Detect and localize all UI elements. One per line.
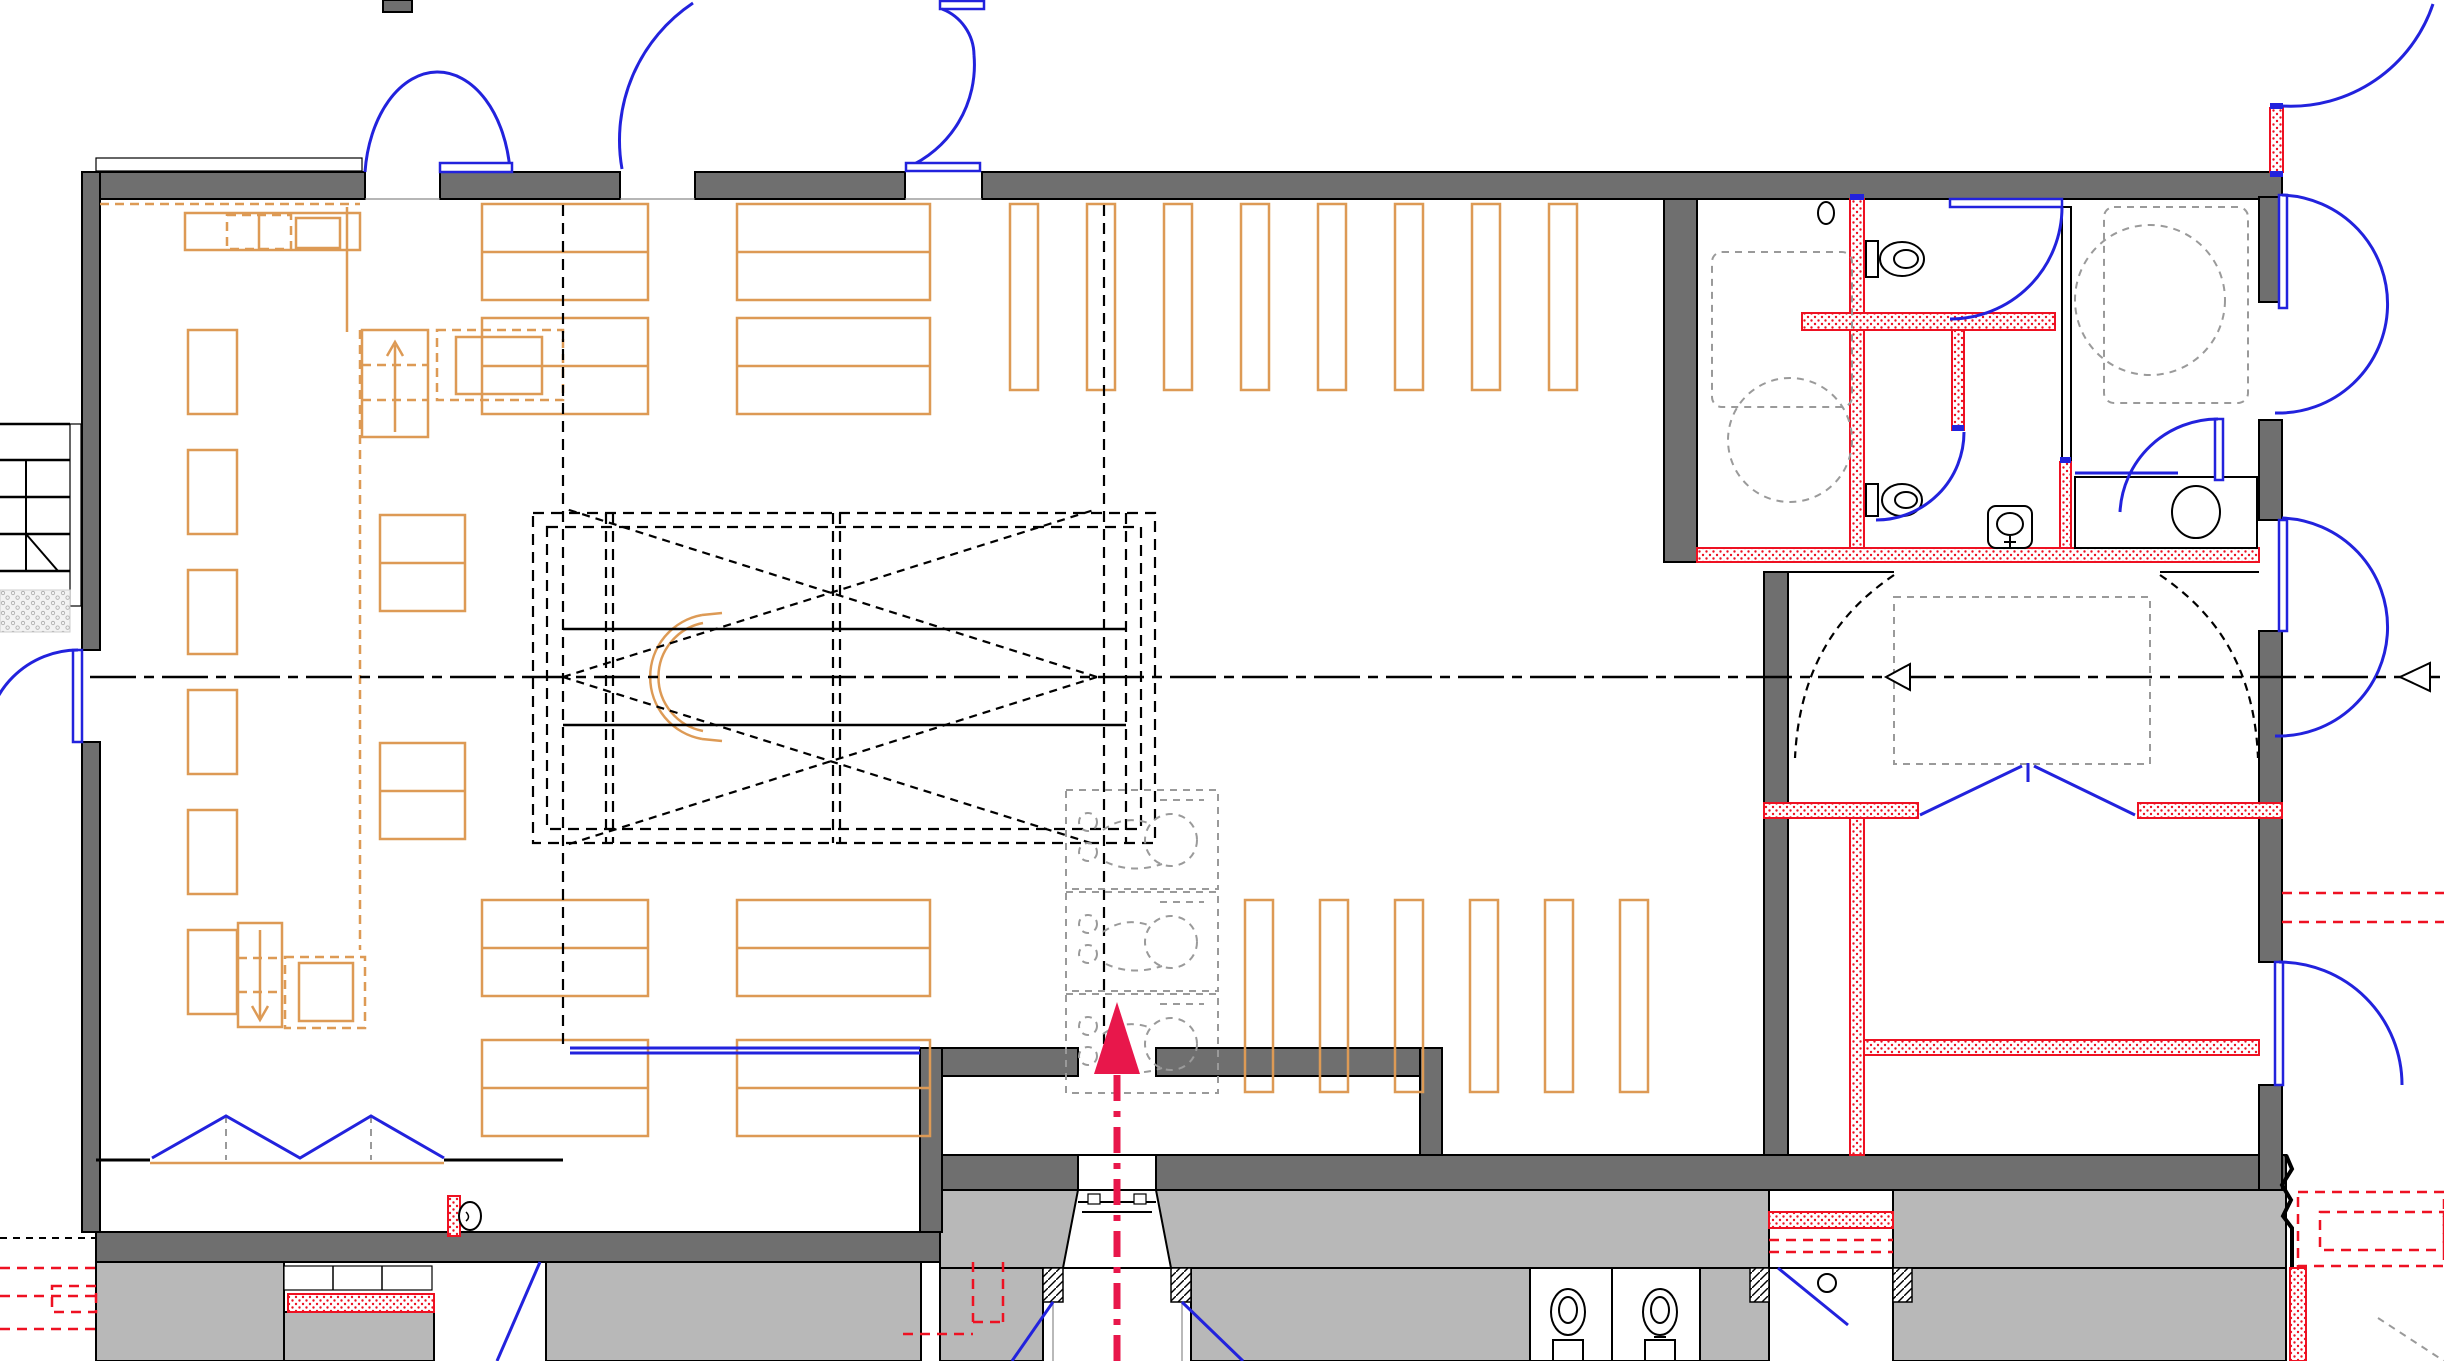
turning-circle: [2075, 225, 2225, 375]
door-frame-cap: [2270, 103, 2283, 109]
parapet-line: [96, 158, 362, 171]
new-wall: [1764, 803, 1918, 818]
door-leaf-open: [497, 1262, 540, 1361]
door-arc: [2279, 962, 2402, 1085]
vestibule-north-wall: [1156, 1048, 1420, 1076]
toilet: [1866, 241, 1924, 277]
door-leaf: [2279, 520, 2287, 631]
door-frame-cap: [1952, 425, 1964, 431]
door-arc: [0, 650, 78, 742]
lower-wall-mass: [940, 1268, 1043, 1361]
door-leaf-open: [1778, 1268, 1848, 1325]
pew-blocks-horizontal: [380, 204, 930, 1136]
table: [188, 690, 237, 774]
toilet-bowl-inner: [1894, 250, 1918, 268]
centerline-marker: [1886, 664, 1910, 690]
new-wall-pier: [2270, 108, 2283, 172]
new-wall: [1850, 818, 1864, 1155]
sight-line: [563, 509, 1097, 677]
west-wall-upper: [82, 172, 100, 650]
pew-slat: [1010, 204, 1038, 390]
drinking-fountain: [459, 1202, 481, 1230]
restroom-wall: [2060, 462, 2071, 548]
floor-plan-svg: [0, 0, 2444, 1361]
east-edge-pier: [2259, 631, 2282, 962]
door-leaf: [906, 163, 980, 171]
lower-wall-mass: [284, 1312, 434, 1361]
door-leaf: [940, 1, 984, 9]
restroom-south-wall: [1697, 548, 2259, 562]
table: [188, 810, 237, 894]
station-box: [1066, 994, 1218, 1093]
door-arc: [2283, 4, 2433, 106]
east-edge-pier: [2259, 1085, 2282, 1190]
new-wall: [2138, 803, 2282, 818]
door-arc-180: [2275, 518, 2388, 736]
door-frame-cap: [2060, 457, 2071, 463]
kitchen-shelving-upper: [362, 330, 563, 437]
kitchen-appliance: [296, 218, 340, 248]
flow-curve: [1795, 575, 1894, 758]
door-frame-cap: [2270, 171, 2283, 177]
entry-mat: [0, 590, 70, 632]
door-leaf: [1950, 199, 2062, 207]
table: [188, 330, 237, 414]
arc-end: [702, 613, 722, 615]
wall-fixture: [1818, 202, 1834, 224]
lower-wall-mass: [546, 1262, 921, 1361]
toilet-tank: [1645, 1340, 1675, 1361]
door-leaf: [440, 163, 512, 172]
door-arc: [1950, 207, 2062, 319]
south-wall-west: [96, 1232, 940, 1262]
arc-end: [702, 739, 722, 741]
door-jamb: [1750, 1268, 1769, 1302]
toilet-tank: [1866, 241, 1878, 277]
threshold-block: [1088, 1194, 1100, 1204]
sink: [2172, 486, 2220, 538]
pew-slat: [1549, 204, 1577, 390]
red-dashed-box: [2320, 1212, 2444, 1250]
station-seat: [1145, 814, 1197, 866]
door-leaf: [2279, 195, 2287, 308]
station-wheel: [1079, 843, 1097, 861]
room-west-wall: [1764, 818, 1788, 1155]
station-box: [1066, 892, 1218, 991]
station-wheel: [1079, 915, 1097, 933]
counter: [2075, 477, 2257, 548]
door-arc: [942, 9, 974, 55]
lavatory-bowl: [1997, 513, 2023, 535]
table: [188, 450, 237, 534]
stair-break: [26, 534, 58, 571]
door-jamb: [1893, 1268, 1912, 1302]
door-arc: [365, 72, 510, 172]
door-leaf: [2215, 419, 2223, 480]
pew-slat: [1470, 900, 1498, 1092]
floor-plan-canvas: [0, 0, 2444, 1361]
stair-railing: [70, 424, 81, 606]
door-leaf: [73, 650, 82, 742]
station-wheel: [1079, 1047, 1097, 1065]
pew-slat: [1620, 900, 1648, 1092]
stall-partition: [2062, 207, 2071, 462]
dashed-diagonal: [2378, 1318, 2444, 1361]
centerline-marker: [2400, 663, 2430, 691]
table: [188, 570, 237, 654]
clearance-rect: [2104, 207, 2248, 403]
toilet-tank: [1553, 1340, 1583, 1361]
floor-drain: [1818, 1274, 1836, 1292]
restroom-wall: [1952, 330, 1964, 430]
exterior-stairs: [0, 424, 70, 632]
lavatory: [1988, 506, 2032, 548]
counter-top: [299, 963, 353, 1021]
corridor-west-wall: [1764, 572, 1788, 803]
furniture: [100, 204, 1648, 1163]
north-wall-seg: [695, 172, 905, 199]
entry-arrow-head: [1094, 1002, 1140, 1074]
flow-curve: [2160, 575, 2258, 758]
pew-slat: [1087, 204, 1115, 390]
north-wall-seg: [982, 172, 2282, 199]
restroom-wall: [1802, 313, 2055, 330]
new-sill: [1769, 1212, 1893, 1228]
pew-slat: [1472, 204, 1500, 390]
pew-slat: [1164, 204, 1192, 390]
north-wall-seg: [440, 172, 620, 199]
toilet-bowl-inner: [1895, 492, 1917, 508]
station-detail: [1103, 800, 1204, 869]
sanctuary-east-wall: [1664, 199, 1697, 562]
sink-counter: [2075, 473, 2257, 548]
pew-slat: [1318, 204, 1346, 390]
kitchen-shelving-lower: [238, 923, 365, 1028]
station-wheel: [1079, 1017, 1097, 1035]
station-detail: [1103, 902, 1204, 971]
toilet-tank: [1866, 484, 1878, 516]
musician-station: [1066, 994, 1218, 1093]
toilet-bowl-inner: [1559, 1297, 1577, 1323]
turning-circle: [1728, 378, 1852, 502]
wall-stub: [383, 0, 412, 12]
lower-west-details: [284, 1266, 432, 1290]
door-arc: [619, 3, 693, 169]
lower-wall-mass: [1893, 1268, 2286, 1361]
sight-line: [563, 677, 1097, 845]
new-wall-band: [288, 1294, 434, 1312]
new-wall-band: [2290, 1268, 2306, 1361]
red-dashed-box: [52, 1286, 96, 1312]
pew-slat: [1395, 204, 1423, 390]
lower-wall-mass: [96, 1262, 284, 1361]
table: [188, 930, 237, 1014]
door-arc-180: [2275, 195, 2388, 413]
fountain-bowl: [459, 1202, 481, 1230]
door-jamb: [1171, 1268, 1191, 1302]
double-door-leaf: [2034, 766, 2135, 815]
door-arc: [906, 55, 974, 168]
station-seat: [1145, 916, 1197, 968]
stair-cells: [284, 1266, 432, 1290]
new-wall: [1864, 1040, 2259, 1055]
platform-dashed: [533, 205, 1155, 1048]
pew-slat: [1241, 204, 1269, 390]
centerline-group: [90, 663, 2444, 691]
lower-toilet-room: [1530, 1268, 1700, 1361]
folding-partition: [152, 1116, 444, 1158]
lower-wall-mass: [1191, 1268, 1530, 1361]
toilet-bowl-inner: [1651, 1297, 1669, 1323]
threshold-block: [1134, 1194, 1146, 1204]
door-jamb: [1043, 1268, 1063, 1302]
clearance-square: [1894, 597, 2150, 764]
existing-walls: [70, 0, 2292, 1268]
pew-slats-upper: [1010, 204, 1577, 390]
door-leaf: [2275, 962, 2283, 1085]
double-door-leaf: [1920, 766, 2022, 815]
side-table-column: [188, 330, 237, 1014]
door-frame-cap: [1850, 194, 1864, 200]
east-edge-pier: [2259, 420, 2282, 520]
vestibule-north-wall: [942, 1048, 1078, 1076]
station-wheel: [1079, 945, 1097, 963]
pew-slat: [1545, 900, 1573, 1092]
north-wall-seg: [96, 172, 365, 199]
musician-station: [1066, 892, 1218, 991]
